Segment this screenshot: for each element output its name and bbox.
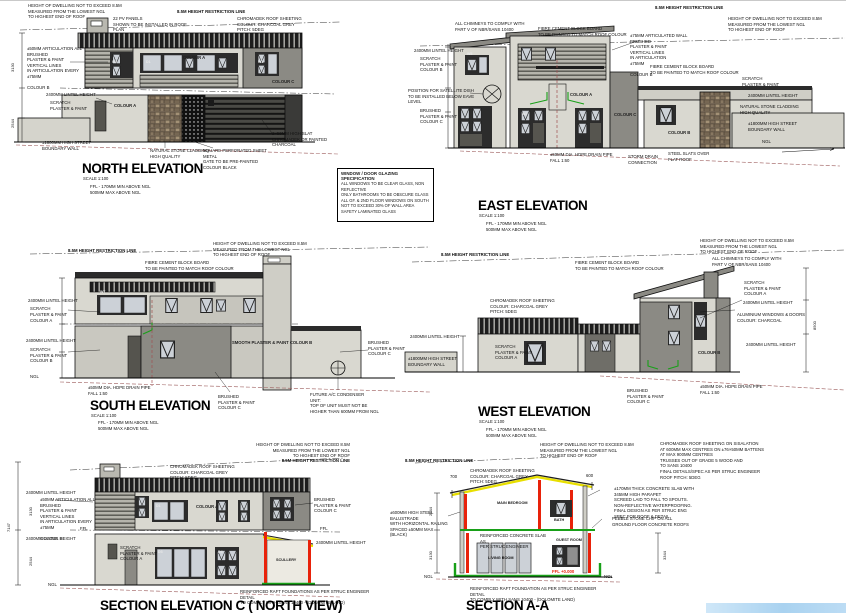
sectiona-dim-right: 3344 — [662, 551, 667, 560]
east-colour-c: COLOUR C — [614, 112, 636, 117]
east-fibre-note: FIBRE CEMENT BLOCK BOARD TO BE PAINTED T… — [538, 26, 628, 37]
north-tag-w2: W2 — [112, 60, 117, 64]
sectionc-articulation: ±50MM ARTICULATION ALL BRUSHED PLASTER &… — [40, 497, 98, 542]
sectionc-ffl-left: FFL — [80, 526, 95, 532]
west-lintel-right-2: 2400MM LINTEL HEIGHT — [746, 342, 806, 348]
south-height-note: HEIGHT OF DWELLING NOT TO EXCEED 8.5M ME… — [213, 241, 323, 258]
north-ffl-note: FFL - 170MM MIN ABOVE NGL 500MM MAX ABOV… — [90, 184, 180, 195]
south-smooth-wall — [141, 326, 231, 378]
east-height-note: HEIGHT OF DWELLING NOT TO EXCEED 8.5M ME… — [728, 16, 838, 33]
east-boundary-note: ±1800MM HIGH STREET BOUNDARY WALL — [748, 121, 803, 132]
south-ffl-note: FFL - 170MM MIN ABOVE NGL 500MM MAX ABOV… — [98, 420, 188, 431]
north-stone-note: NATURAL STONE CLADDING HIGH QUALITY — [150, 148, 210, 159]
sectiona-red-column-5 — [588, 533, 591, 573]
sectiona-pebble-note: PEBBLE STONE CHIP ON ALL GROUND FLOOR CO… — [612, 516, 697, 527]
east-restriction-label: 8.5M HEIGHT RESTRICTION LINE — [655, 5, 755, 11]
east-chimneys-note: ALL CHIMNEYS TO COMPLY WITH PART V OF NB… — [455, 21, 530, 32]
north-restriction-label: 8.5M HEIGHT RESTRICTION LINE — [177, 9, 277, 15]
sectionc-red-column-right — [308, 540, 311, 584]
east-slats-note: STEEL SLATS OVER FLAT ROOF — [668, 151, 728, 162]
sectiona-title: SECTION A-A — [466, 598, 549, 613]
south-restriction-label: 8.5M HEIGHT RESTRICTION LINE — [68, 248, 168, 254]
glazing-title: WINDOW / DOOR GLAZING SPECIFICATION — [341, 171, 430, 181]
sectionc-dim-lower: 2544 — [28, 557, 33, 566]
east-ngl-label: NGL — [762, 139, 782, 145]
south-right-wing — [291, 330, 361, 378]
west-title: WEST ELEVATION — [478, 404, 590, 419]
sky-image-strip — [706, 603, 846, 613]
north-roof-band — [78, 33, 302, 48]
west-fibre-note: FIBRE CEMENT BLOCK BOARD TO BE PAINTED T… — [575, 260, 665, 271]
sectiona-main-bedroom: MAIN BEDROOM — [497, 501, 528, 505]
west-colour-b: COLOUR B — [698, 350, 720, 355]
sectionc-restriction-label: 8.5M HEIGHT RESTRICTION LINE — [250, 458, 350, 464]
east-colour-a: COLOUR A — [570, 92, 592, 97]
north-dim-upper: 3130 — [10, 63, 15, 72]
east-storm-note: STORM DRAIN CONNECTION — [628, 154, 673, 165]
sectionc-lintel-lower: 2400MM LINTEL HEIGHT — [26, 536, 86, 542]
east-colour-c-band — [610, 72, 638, 148]
sectiona-red-column-2 — [538, 480, 541, 530]
east-tag-w5: W5 — [467, 52, 472, 56]
sectiona-slab-note-inline: REINFORCED CONCRETE SLAB AS PER STRUC EN… — [480, 533, 550, 550]
sectiona-living-room: LIVING ROOM — [488, 556, 514, 560]
north-scratch-note: SCRATCH PLASTER & PAINT — [50, 100, 100, 111]
sectionc-red-column-left — [264, 532, 267, 584]
east-stone-note: NATURAL STONE CLADDING HIGH QUALITY — [740, 104, 800, 115]
west-ffl-note: FFL - 170MM MIN ABOVE NGL 500MM MAX ABOV… — [486, 427, 576, 438]
west-rib-band — [478, 318, 578, 334]
sectiona-pitch-note: ROOF PITCH: 5DEG — [660, 475, 730, 481]
north-pv-note: 22 PV PANELS SHOWN TO BE INSTALLED IN RO… — [113, 16, 193, 33]
north-tag-d1: D1 — [146, 60, 151, 64]
east-drain-note: ±50MM DIA. HDPE DRAIN PIPE FALL 1:60 — [550, 152, 625, 163]
sectiona-slab-note: ±170MM THICK CONCRETE SLAB WITH 345MM HI… — [614, 486, 709, 519]
east-scratch-right: SCRATCH PLASTER & PAINT — [742, 76, 792, 87]
north-colour-a-upper: COLOUR A — [183, 55, 205, 60]
north-boundary-wall — [18, 118, 90, 142]
south-lintel-1: 2400MM LINTEL HEIGHT — [28, 298, 88, 304]
west-scale: SCALE 1:100 — [479, 419, 504, 424]
south-ngl-label: NGL — [30, 374, 50, 380]
sectiona-guest-room: GUEST ROOM — [556, 538, 582, 542]
sectionc-chromadek-note: CHROMADEK ROOF SHEETING COLOUR: CHARCOAL… — [170, 464, 250, 481]
east-ffl-note: FFL - 170MM MIN ABOVE NGL 500MM MAX ABOV… — [486, 221, 576, 232]
west-restriction-label: 8.5M HEIGHT RESTRICTION LINE — [441, 252, 541, 258]
sectiona-chromadek-note: CHROMADEK ROOF SHEETING COLOUR: CHARCOAL… — [470, 468, 540, 485]
north-dim-lower: 2544 — [10, 119, 15, 128]
sectionc-brushed-c: BRUSHED PLASTER & PAINT COLOUR C — [314, 497, 364, 514]
sectionc-height-note: HEIGHT OF DWELLING NOT TO EXCEED 8.5M ME… — [240, 442, 350, 459]
south-scratch-b-note: SCRATCH PLASTER & PAINT COLOUR B — [30, 347, 80, 364]
west-chromadek-note: CHROMADEK ROOF SHEETING COLOUR: CHARCOAL… — [490, 298, 565, 315]
east-colour-b: COLOUR B — [668, 130, 690, 135]
south-brushed-right: BRUSHED PLASTER & PAINT COLOUR C — [368, 340, 418, 357]
west-drain-note: ±50MM DIA. HDPE DRAIN PIPE FALL 1:60 — [700, 384, 775, 395]
north-title: NORTH ELEVATION — [82, 161, 203, 176]
west-boundary-note: ±1800MM HIGH STREET BOUNDARY WALL — [408, 356, 463, 367]
sectionc-tag-d3: D3 — [158, 550, 163, 554]
east-scratch-b: SCRATCH PLASTER & PAINT COLOUR B — [420, 56, 470, 73]
north-perforated-gate — [182, 95, 205, 142]
sectionc-tag-d1: D1 — [156, 504, 161, 508]
sectiona-ffl-zero: FFL +0.000 — [552, 569, 587, 575]
south-brushed-bottom: BRUSHED PLASTER & PAINT COLOUR C — [218, 394, 273, 411]
sectionc-scullery — [267, 540, 310, 584]
south-tower — [263, 264, 291, 390]
north-chromadek-note: CHROMADEK ROOF SHEETING COLOUR: CHARCOAL… — [237, 16, 317, 33]
west-chimney — [704, 272, 718, 298]
south-parapet — [75, 272, 290, 278]
west-lintel-right-1: 2400MM LINTEL HEIGHT — [743, 300, 803, 306]
sectiona-roof-note: CHROMADEK ROOF SHEETING ON SISALATION AT… — [660, 441, 800, 474]
west-height-note: HEIGHT OF DWELLING NOT TO EXCEED 8.5M ME… — [700, 238, 810, 255]
south-colour-a-note: COLOUR A — [30, 318, 75, 324]
east-brushed-c: BRUSHED PLASTER & PAINT COLOUR C — [420, 108, 470, 125]
sectiona-restriction-label: 8.5M HEIGHT RESTRICTION LINE — [405, 458, 505, 464]
sectiona-red-column-1 — [464, 494, 467, 530]
east-title: EAST ELEVATION — [478, 198, 587, 213]
west-scratch-a: SCRATCH PLASTER & PAINT COLOUR A — [495, 344, 545, 361]
south-fibre-note: FIBRE CEMENT BLOCK BOARD TO BE PAINTED T… — [145, 260, 240, 271]
west-scratch-a-right: SCRATCH PLASTER & PAINT COLOUR A — [744, 280, 794, 297]
south-drain-note: ±50MM DIA. HDPE DRAIN PIPE FALL 1:60 — [88, 385, 163, 396]
north-boundary-note: ±1800MM HIGH STREET BOUNDARY WALL — [42, 140, 97, 151]
sectiona-bath: BATH — [554, 518, 564, 522]
east-tag-w2: W2 — [522, 112, 527, 116]
sectionc-ffl-right: FFL — [320, 526, 335, 532]
sectiona-balustrade-note: ±600MM HIGH STEEL BALUSTRADE WITH HORIZO… — [390, 510, 452, 538]
sectionc-tag-d4: D4 — [218, 550, 223, 554]
south-rib-strip — [90, 282, 215, 292]
west-brushed-c: BRUSHED PLASTER & PAINT COLOUR C — [627, 388, 677, 405]
south-title: SOUTH ELEVATION — [90, 398, 210, 413]
sectionc-lintel-right: 2400MM LINTEL HEIGHT — [316, 540, 376, 546]
sectiona-dim-right-eave: 600 — [586, 473, 601, 479]
sectionc-title: SECTION ELEVATION C ( NORTH VIEW) — [100, 598, 342, 613]
sectiona-red-column-4 — [466, 533, 469, 573]
north-articulation-note: ±50MM ARTICULATION ALL BRUSHED PLASTER &… — [27, 46, 85, 91]
sectionc-dim-upper: 3130 — [28, 507, 33, 516]
elevation-drawing-sheet: HEIGHT OF DWELLING NOT TO EXCEED 8.5M ME… — [0, 0, 846, 613]
east-lintel-right: 2400MM LINTEL HEIGHT — [748, 93, 808, 99]
north-colour-a-lower: COLOUR A — [114, 103, 136, 108]
sectiona-ngl-left: NGL — [424, 574, 444, 580]
north-tag-w1: W1 — [258, 60, 263, 64]
south-smooth-label: SMOOTH PLASTER & PAINT COLOUR B — [232, 340, 312, 345]
east-satellite-note: POSITION FOR SATELLITE DISH TO BE INSTAL… — [408, 88, 480, 105]
west-dim-8500: 8500 — [812, 321, 817, 330]
south-lintel-2: 2400MM LINTEL HEIGHT — [26, 338, 86, 344]
east-lintel-left: 2400MM LINTEL HEIGHT — [414, 48, 474, 54]
sectionc-colour-a: COLOUR A — [196, 504, 218, 509]
sectiona-ngl-right: NGL — [604, 574, 624, 580]
sectionc-scullery-label: SCULLERY — [276, 558, 296, 562]
sectionc-ngl-label: NGL — [48, 582, 68, 588]
west-aluminium-note: ALUMINIUM WINDOWS & DOORS COLOUR: CHARCO… — [737, 312, 807, 323]
south-scratch-note: SCRATCH PLASTER & PAINT — [30, 306, 80, 317]
north-scale: SCALE 1:100 — [83, 176, 108, 181]
east-stone-pillar — [700, 92, 730, 148]
west-lintel-left: 2400MM LINTEL HEIGHT — [410, 334, 470, 340]
sectiona-dim-left-eave: 700 — [450, 474, 465, 480]
sectiona-height-note: HEIGHT OF DWELLING NOT TO EXCEED 8.5M ME… — [540, 442, 650, 459]
sectiona-dim-upper: 2544 — [428, 507, 433, 516]
south-ac-note: FUTURE A/C CONDENSER UNIT: TOP OF UNIT M… — [310, 392, 390, 414]
sectionc-lintel-left: 2400MM LINTEL HEIGHT — [26, 490, 86, 496]
north-colour-c: COLOUR C — [272, 79, 294, 84]
east-fibre-note-2: FIBRE CEMENT BLOCK BOARD TO BE PAINTED T… — [650, 64, 740, 75]
glazing-body: ALL WINDOWS TO BE CLEAR GLASS, NON REFLE… — [341, 181, 430, 214]
north-slat-note: 2×50MM HIGH SLAT CHROMADEK OR PAINTED CH… — [272, 131, 332, 148]
north-stone-cladding — [148, 95, 182, 142]
north-lintel-note: 2400MM LINTEL HEIGHT — [46, 92, 106, 98]
south-scale: SCALE 1:100 — [91, 413, 116, 418]
north-gate-note: SQUARE PERFORATED SHEET METAL GATE TO BE… — [203, 148, 278, 170]
east-scale: SCALE 1:100 — [479, 213, 504, 218]
west-chimneys-note: ALL CHIMNEYS TO COMPLY WITH PART V OF NB… — [712, 256, 792, 267]
sectiona-dim-lower: 3130 — [428, 551, 433, 560]
glazing-spec-box: WINDOW / DOOR GLAZING SPECIFICATION ALL … — [337, 168, 434, 222]
sectionc-dim-total: 7147 — [6, 523, 11, 532]
south-tag-w7: W7 — [100, 290, 105, 294]
